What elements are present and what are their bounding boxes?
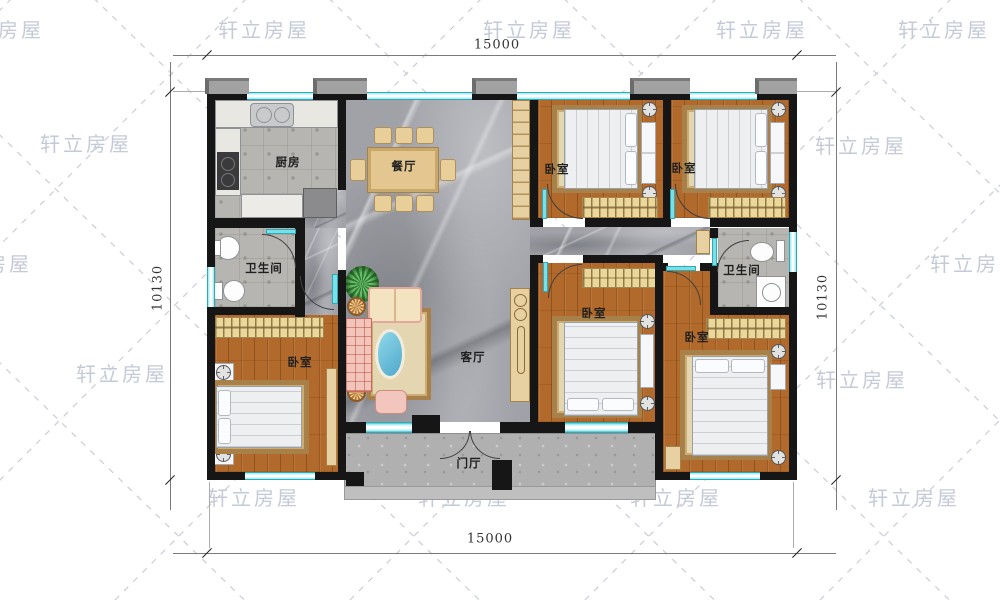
pillow <box>625 151 637 185</box>
watermark-text: 轩立房屋 <box>40 128 132 157</box>
hall-cabinet <box>696 230 710 254</box>
ceiling-fan-symbol <box>642 102 657 117</box>
sink-basin <box>762 283 781 302</box>
dimension-line-right <box>836 62 837 510</box>
window <box>366 422 412 433</box>
window <box>245 472 315 480</box>
wall-segment <box>207 218 305 228</box>
wall-segment <box>789 92 797 480</box>
hallway-floor <box>530 227 710 255</box>
door-leaf <box>543 262 548 292</box>
wall-segment <box>583 255 663 263</box>
dimension-line-top <box>173 55 836 56</box>
room-label-bedroom-top-left: 卧室 <box>545 161 570 177</box>
dimension-line-bottom <box>173 553 836 554</box>
wall-segment <box>530 255 543 263</box>
extension-line <box>209 482 210 548</box>
ceiling-fan-symbol <box>771 344 786 359</box>
window <box>789 232 797 272</box>
floor-plan-canvas: 轩立房屋 轩立房屋 轩立房屋 轩立房屋 轩立房屋 轩立房屋 轩立房屋 轩立房屋 … <box>0 0 1000 600</box>
wardrobe <box>708 197 786 218</box>
room-label-bath-right: 卫生间 <box>723 262 761 278</box>
kitchen-counter-bottom <box>241 194 303 218</box>
facade-pillar <box>630 78 690 94</box>
pillow <box>755 151 767 185</box>
stove-burner <box>221 173 235 187</box>
wall-segment <box>338 270 346 472</box>
room-label-bedroom-top-right: 卧室 <box>672 160 697 176</box>
wall-segment <box>585 218 668 227</box>
room-label-foyer: 门厅 <box>457 455 482 471</box>
extension-line <box>797 91 837 92</box>
nightstand <box>770 364 786 390</box>
bench <box>665 446 681 470</box>
nightstand <box>641 122 656 184</box>
dining-chair <box>374 127 392 144</box>
porch-column <box>492 460 512 490</box>
pillow <box>731 359 765 373</box>
dimension-right: 10130 <box>816 274 831 320</box>
watermark-text: 轩立房屋 <box>218 14 310 43</box>
wardrobe <box>706 318 786 339</box>
wall-segment <box>295 228 305 317</box>
wall-segment <box>207 307 305 315</box>
watermark-text: 轩立房屋 <box>716 14 808 43</box>
tv-cabinet-handle <box>517 326 525 374</box>
ceiling-fan-symbol <box>640 396 655 411</box>
wall-segment <box>710 307 797 315</box>
sofa-left <box>345 318 372 392</box>
refrigerator <box>303 188 337 218</box>
watermark-text: 轩立房屋 <box>815 130 907 159</box>
kitchen-sink-basin <box>274 107 290 123</box>
wall-corner <box>346 472 364 486</box>
facade-pillar <box>755 78 797 94</box>
extension-line <box>173 91 207 92</box>
pillow <box>567 398 599 411</box>
toilet-bowl <box>223 280 245 302</box>
wall-segment <box>710 228 718 238</box>
side-cabinet <box>326 368 337 466</box>
toilet-tank <box>214 282 223 300</box>
dining-chair <box>350 159 366 181</box>
tv-cabinet-speaker <box>514 308 527 321</box>
window <box>565 422 628 433</box>
window <box>367 92 472 100</box>
ceiling-fan-symbol <box>771 102 786 117</box>
facade-pillar <box>472 78 517 94</box>
nightstand <box>770 122 785 184</box>
room-label-bedroom-center: 卧室 <box>582 305 607 321</box>
wall-segment <box>530 218 543 227</box>
coffee-table <box>375 329 405 379</box>
side-table <box>347 297 366 316</box>
tv-cabinet-speaker <box>514 294 527 307</box>
pillow <box>218 390 231 416</box>
stove-burner <box>221 157 235 171</box>
wall-segment <box>346 422 366 433</box>
window <box>517 92 630 100</box>
room-label-bedroom-left: 卧室 <box>288 354 313 370</box>
wardrobe <box>582 268 656 288</box>
dimension-top: 15000 <box>474 38 520 53</box>
room-label-dining: 餐厅 <box>392 158 417 174</box>
toilet-bowl <box>750 242 774 262</box>
room-label-kitchen: 厨房 <box>276 154 301 170</box>
watermark-text: 轩立房屋 <box>868 482 960 511</box>
door-leaf <box>266 229 296 234</box>
door-leaf <box>670 189 675 219</box>
dimension-bottom: 15000 <box>467 532 513 547</box>
pillow <box>218 418 231 444</box>
ceiling-fan-symbol <box>771 450 786 465</box>
dining-chair <box>440 159 456 181</box>
wall-segment <box>655 255 663 472</box>
dimension-line-left <box>170 62 171 510</box>
window <box>690 472 760 480</box>
window <box>207 267 215 307</box>
wardrobe <box>582 197 658 218</box>
pillow <box>625 113 637 147</box>
window <box>690 92 757 100</box>
sideboard-cabinet <box>512 100 530 220</box>
extension-line <box>793 482 794 548</box>
wall-segment <box>530 263 538 422</box>
wall-segment <box>710 218 797 227</box>
kitchen-sink-basin <box>256 107 272 123</box>
dining-chair <box>416 195 434 212</box>
nightstand <box>640 334 654 388</box>
room-label-living: 客厅 <box>461 349 486 365</box>
wall-segment <box>338 98 346 190</box>
wall-segment <box>500 422 565 433</box>
watermark-text: 轩立房屋 <box>0 14 44 43</box>
pillow <box>755 113 767 147</box>
facade-pillar <box>205 78 249 94</box>
pillow <box>602 398 634 411</box>
dining-chair <box>374 195 392 212</box>
door-leaf <box>712 238 717 266</box>
wall-pier <box>412 415 440 433</box>
watermark-text: 轩立房屋 <box>0 248 32 277</box>
watermark-text: 轩立房屋 <box>898 14 990 43</box>
dining-chair <box>395 127 413 144</box>
dining-chair <box>416 127 434 144</box>
watermark-text: 轩立房屋 <box>816 364 908 393</box>
sofa-back <box>368 287 422 323</box>
ceiling-fan-symbol <box>640 314 655 329</box>
room-label-bedroom-right: 卧室 <box>685 329 710 345</box>
wardrobe <box>214 317 324 338</box>
facade-pillar <box>313 78 367 94</box>
door-leaf <box>542 189 547 219</box>
watermark-text: 轩立房屋 <box>208 482 300 511</box>
window <box>247 92 313 100</box>
wall-segment <box>628 422 655 433</box>
pillow <box>695 359 729 373</box>
dimension-left: 10130 <box>151 265 166 311</box>
dining-chair <box>395 195 413 212</box>
toilet-tank <box>776 240 785 262</box>
ottoman <box>375 390 407 414</box>
room-label-bath-left: 卫生间 <box>245 260 283 276</box>
wall-segment <box>530 98 538 222</box>
watermark-text: 轩立房屋 <box>76 358 168 387</box>
watermark-text: 轩立房屋 <box>930 248 1000 277</box>
ceiling-fan-symbol <box>216 365 231 380</box>
